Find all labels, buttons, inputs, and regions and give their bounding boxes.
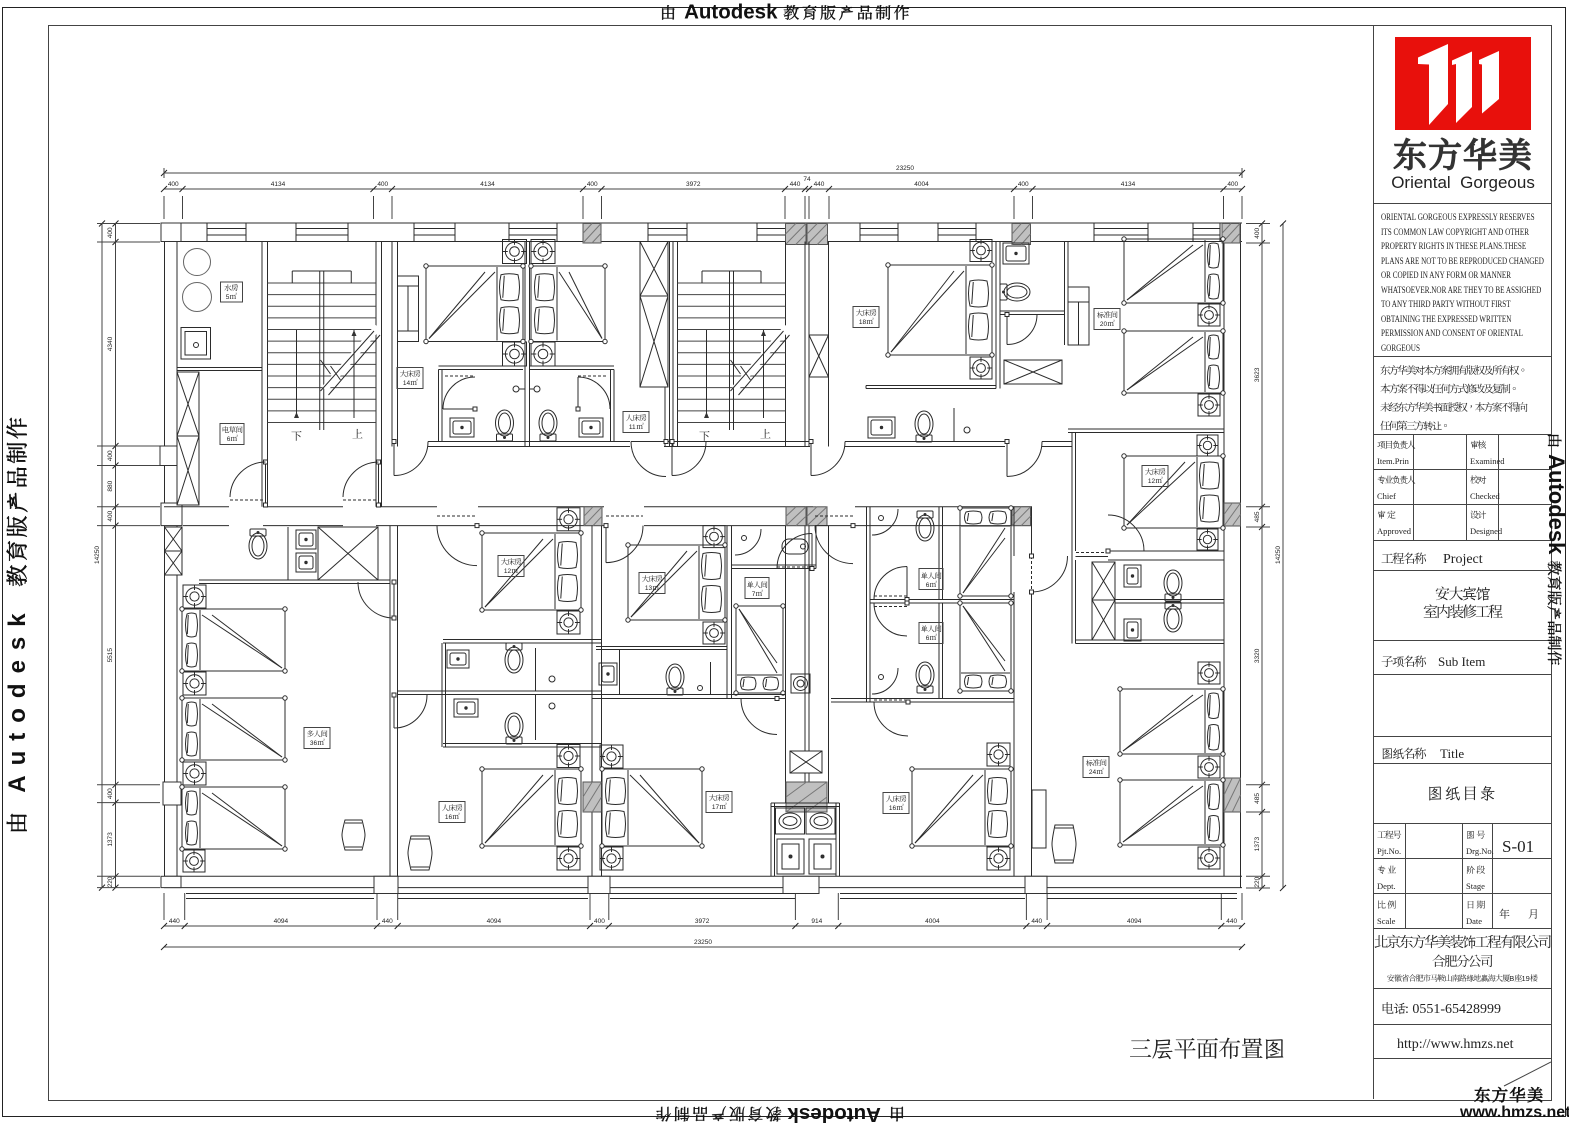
svg-text:Pjt.No.: Pjt.No.: [1377, 846, 1401, 856]
svg-text:11: 11: [629, 424, 636, 431]
svg-text:6: 6: [227, 436, 231, 443]
svg-text:www.hmzs.net: www.hmzs.net: [1459, 1104, 1569, 1121]
svg-text:Stage: Stage: [1466, 881, 1485, 891]
svg-text:Oriental Gorgeous: Oriental Gorgeous: [1391, 173, 1535, 192]
svg-text:B: B: [1509, 974, 1514, 983]
svg-text:Scale: Scale: [1377, 916, 1396, 926]
svg-text:Approved: Approved: [1377, 526, 1412, 536]
svg-text:Checked: Checked: [1470, 491, 1500, 501]
svg-text:: 0551-65428999: : 0551-65428999: [1405, 1002, 1501, 1017]
svg-text:Title: Title: [1440, 746, 1464, 761]
svg-text:19: 19: [1522, 974, 1530, 983]
svg-text:24: 24: [1089, 769, 1097, 776]
svg-text:Examined: Examined: [1470, 456, 1505, 466]
svg-text:14: 14: [403, 380, 411, 387]
svg-text:http://www.hmzs.net: http://www.hmzs.net: [1397, 1037, 1514, 1052]
svg-text:Autodesk: Autodesk: [4, 587, 31, 810]
svg-text:17: 17: [712, 804, 720, 811]
svg-text:13: 13: [645, 585, 653, 592]
svg-text:6: 6: [926, 582, 930, 589]
svg-text:6: 6: [926, 635, 930, 642]
svg-text:5: 5: [226, 294, 230, 301]
svg-text:Project: Project: [1443, 552, 1483, 567]
svg-text:18: 18: [859, 319, 867, 326]
svg-text:Autodesk: Autodesk: [782, 1103, 887, 1124]
svg-text:36: 36: [310, 740, 318, 747]
svg-text:7: 7: [752, 591, 756, 598]
svg-text:Chief: Chief: [1377, 491, 1396, 501]
svg-text:Autodesk: Autodesk: [1544, 448, 1569, 560]
svg-text:S-01: S-01: [1502, 837, 1534, 856]
svg-text:20: 20: [1100, 321, 1108, 328]
svg-text:Item.Prin: Item.Prin: [1377, 456, 1410, 466]
svg-text:Date: Date: [1466, 916, 1482, 926]
svg-text:Sub Item: Sub Item: [1438, 654, 1485, 669]
svg-text:16: 16: [889, 805, 897, 812]
svg-text:Designed: Designed: [1470, 526, 1503, 536]
svg-text:Dept.: Dept.: [1377, 881, 1396, 891]
svg-text:16: 16: [445, 814, 453, 821]
svg-text:12: 12: [504, 568, 512, 575]
svg-text:12: 12: [1148, 478, 1156, 485]
svg-text:Drg.No.: Drg.No.: [1466, 846, 1494, 856]
svg-text:Autodesk: Autodesk: [678, 1, 783, 24]
